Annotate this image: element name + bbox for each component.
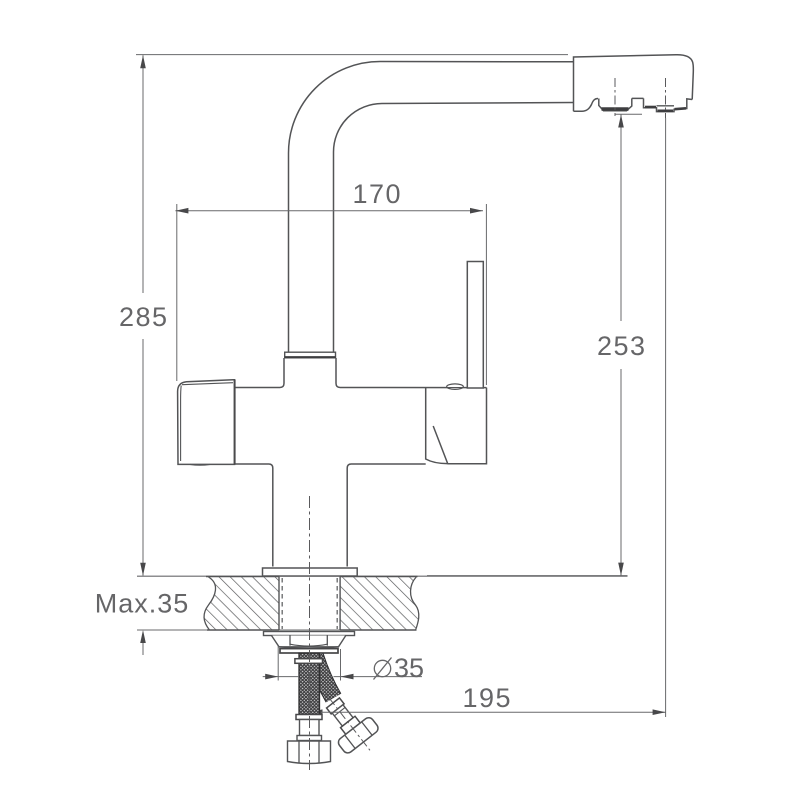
svg-text:Max.35: Max.35 <box>95 589 190 619</box>
svg-text:170: 170 <box>353 179 403 209</box>
svg-text:253: 253 <box>597 331 647 361</box>
svg-text:285: 285 <box>119 302 169 332</box>
svg-text:35: 35 <box>394 653 424 683</box>
svg-text:195: 195 <box>463 683 513 713</box>
